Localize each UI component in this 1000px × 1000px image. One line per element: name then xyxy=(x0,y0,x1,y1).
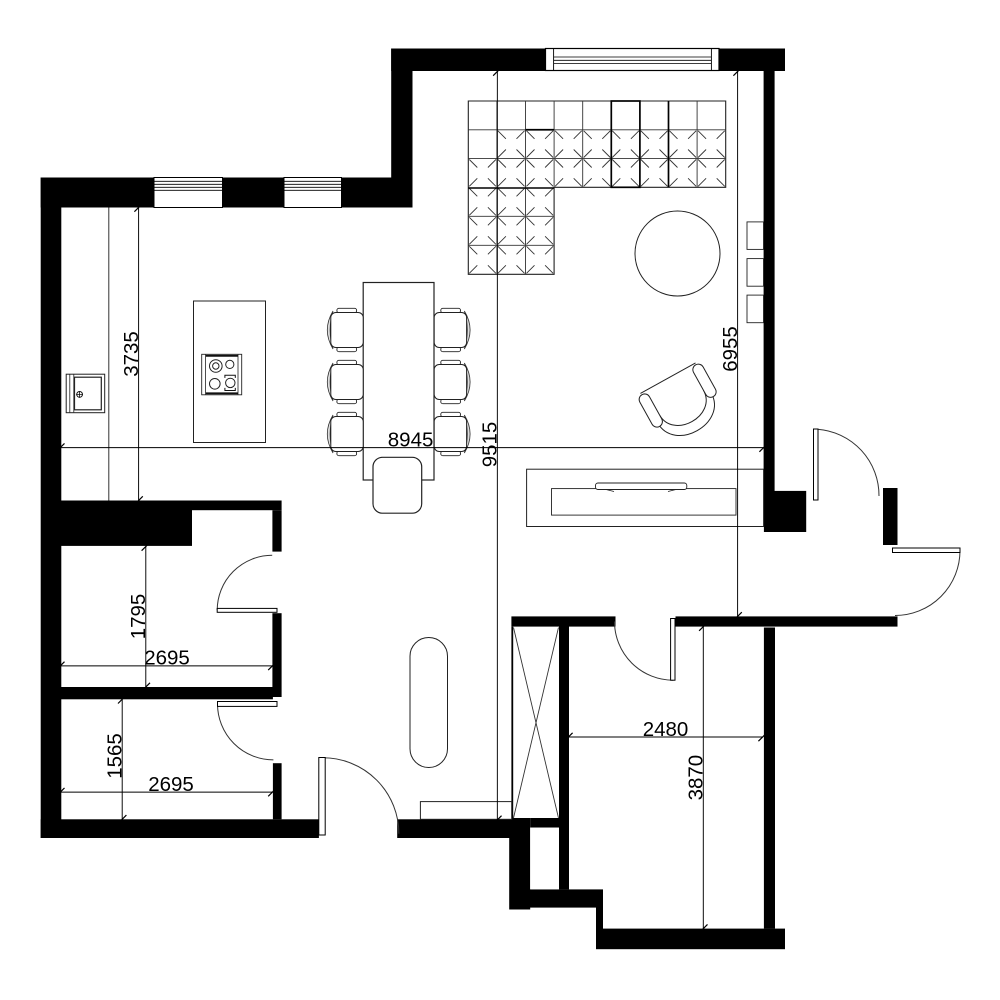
svg-text:1565: 1565 xyxy=(103,733,126,779)
svg-text:2695: 2695 xyxy=(148,773,194,796)
svg-text:6955: 6955 xyxy=(719,326,742,372)
svg-text:1795: 1795 xyxy=(127,594,150,640)
svg-text:8945: 8945 xyxy=(388,428,434,451)
svg-text:3870: 3870 xyxy=(685,755,708,801)
svg-text:2480: 2480 xyxy=(643,718,689,741)
svg-text:9515: 9515 xyxy=(479,422,502,468)
svg-text:2695: 2695 xyxy=(144,647,190,670)
svg-text:3735: 3735 xyxy=(120,331,143,377)
